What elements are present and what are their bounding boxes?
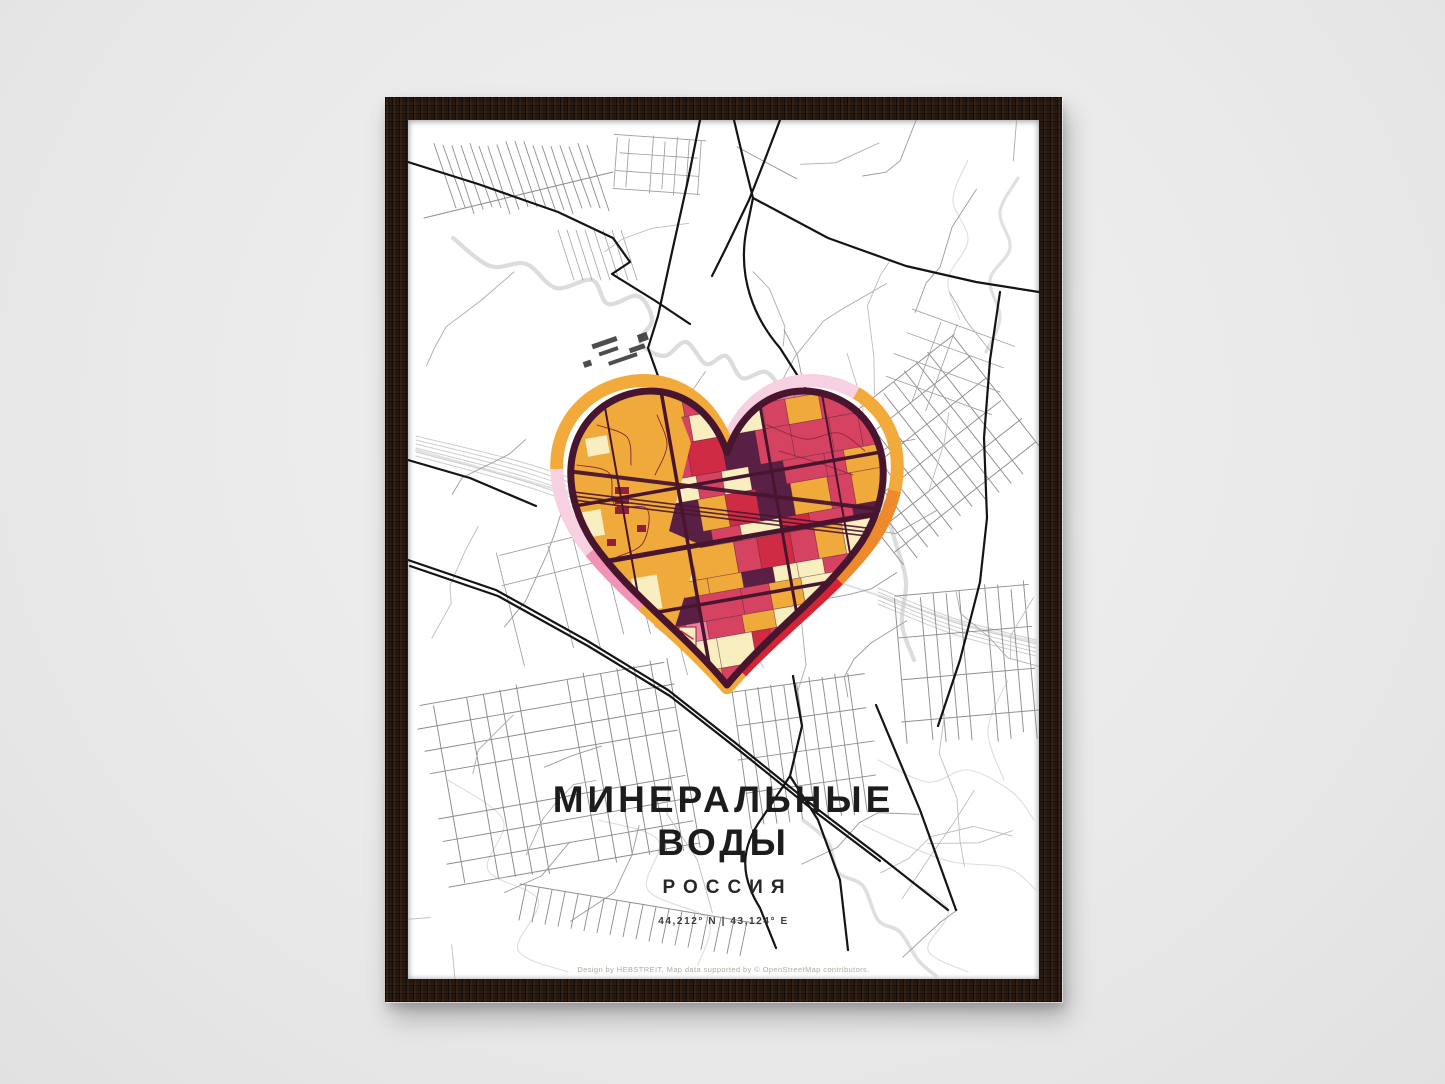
poster-frame: МИНЕРАЛЬНЫЕ ВОДЫ РОССИЯ 44,212° N | 43,1…: [385, 97, 1062, 1002]
map-poster: МИНЕРАЛЬНЫЕ ВОДЫ РОССИЯ 44,212° N | 43,1…: [408, 120, 1039, 979]
street-map-with-heart-overlay: [408, 120, 1039, 979]
wall-background: МИНЕРАЛЬНЫЕ ВОДЫ РОССИЯ 44,212° N | 43,1…: [0, 0, 1445, 1084]
